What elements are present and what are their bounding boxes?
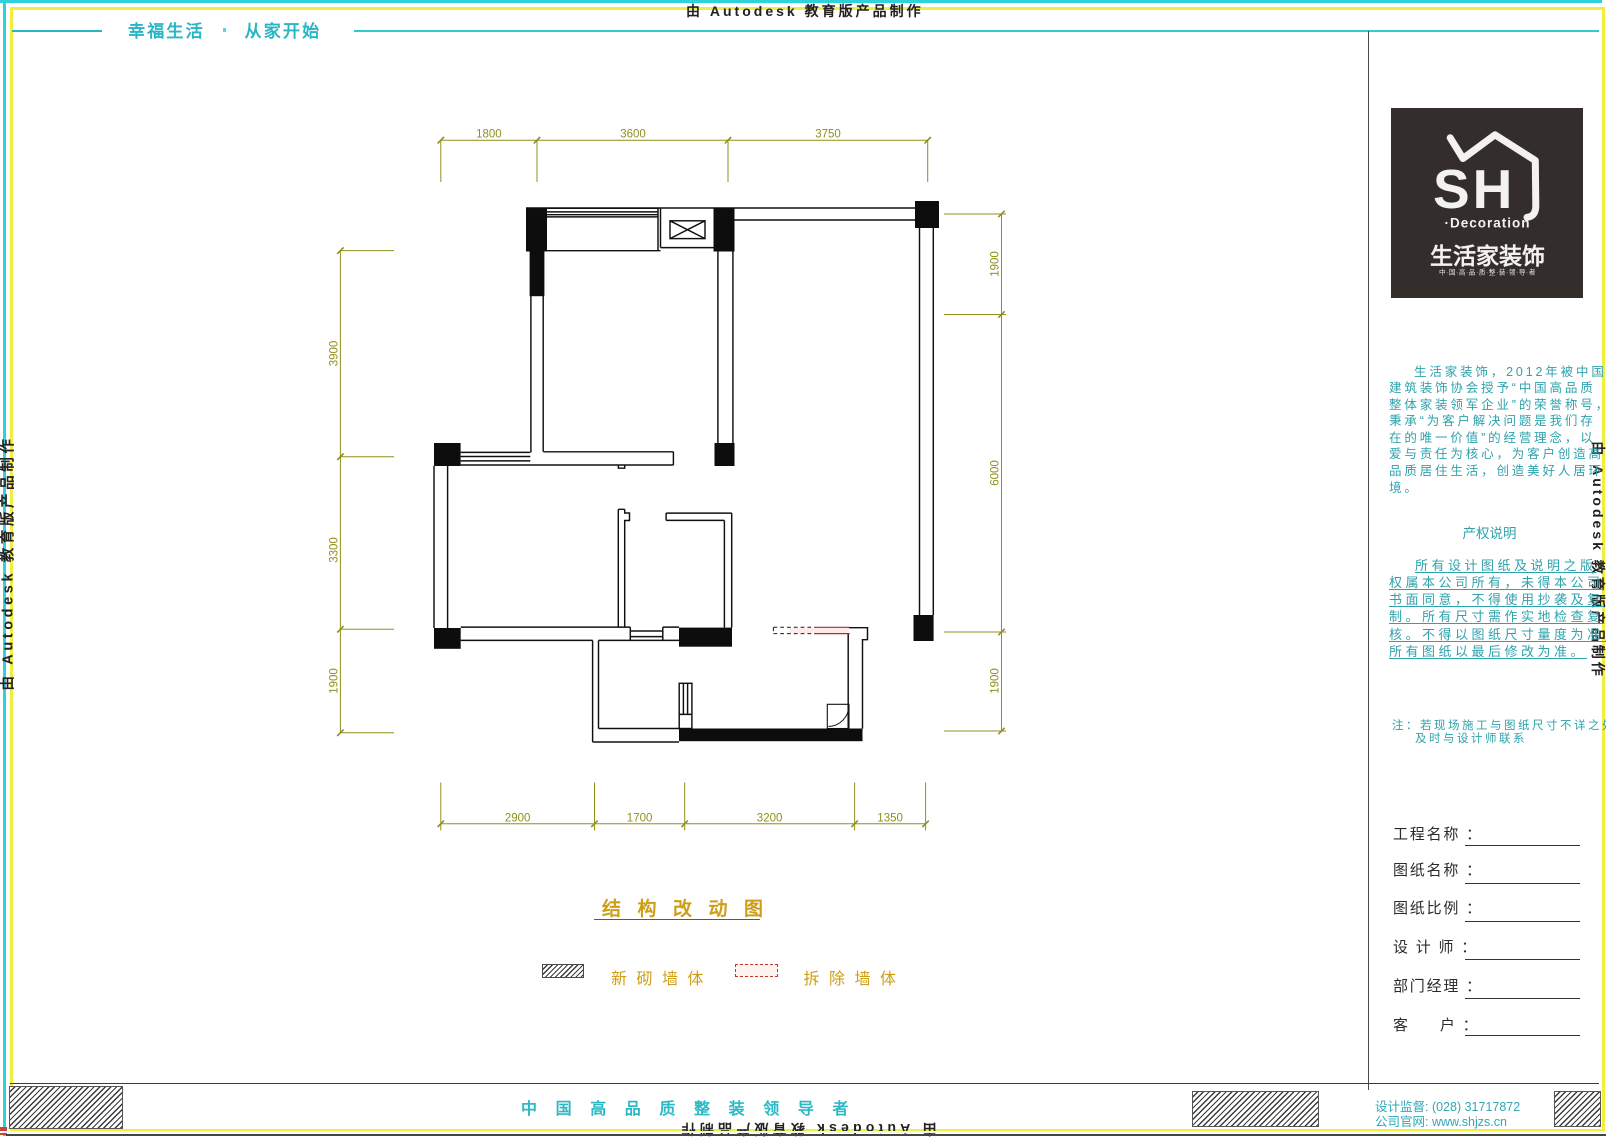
svg-text:3900: 3900 — [328, 341, 340, 367]
svg-text:3300: 3300 — [328, 537, 340, 563]
svg-text:生活家装饰: 生活家装饰 — [1430, 243, 1545, 269]
svg-text:6000: 6000 — [990, 460, 1002, 486]
svg-text:1900: 1900 — [990, 251, 1002, 277]
svg-text:1900: 1900 — [990, 668, 1002, 694]
svg-text:·Decoration: ·Decoration — [1444, 216, 1530, 231]
svg-text:3600: 3600 — [620, 129, 646, 141]
svg-text:SH: SH — [1433, 158, 1515, 220]
svg-text:1900: 1900 — [328, 668, 340, 694]
svg-text:2900: 2900 — [505, 813, 531, 825]
svg-text:3200: 3200 — [757, 813, 783, 825]
svg-text:3750: 3750 — [815, 129, 841, 141]
svg-text:中·国·高·品·质·整·装·领·导·者: 中·国·高·品·质·整·装·领·导·者 — [1438, 268, 1535, 277]
svg-text:1350: 1350 — [877, 813, 903, 825]
svg-text:1800: 1800 — [476, 129, 502, 141]
svg-text:1700: 1700 — [627, 813, 653, 825]
